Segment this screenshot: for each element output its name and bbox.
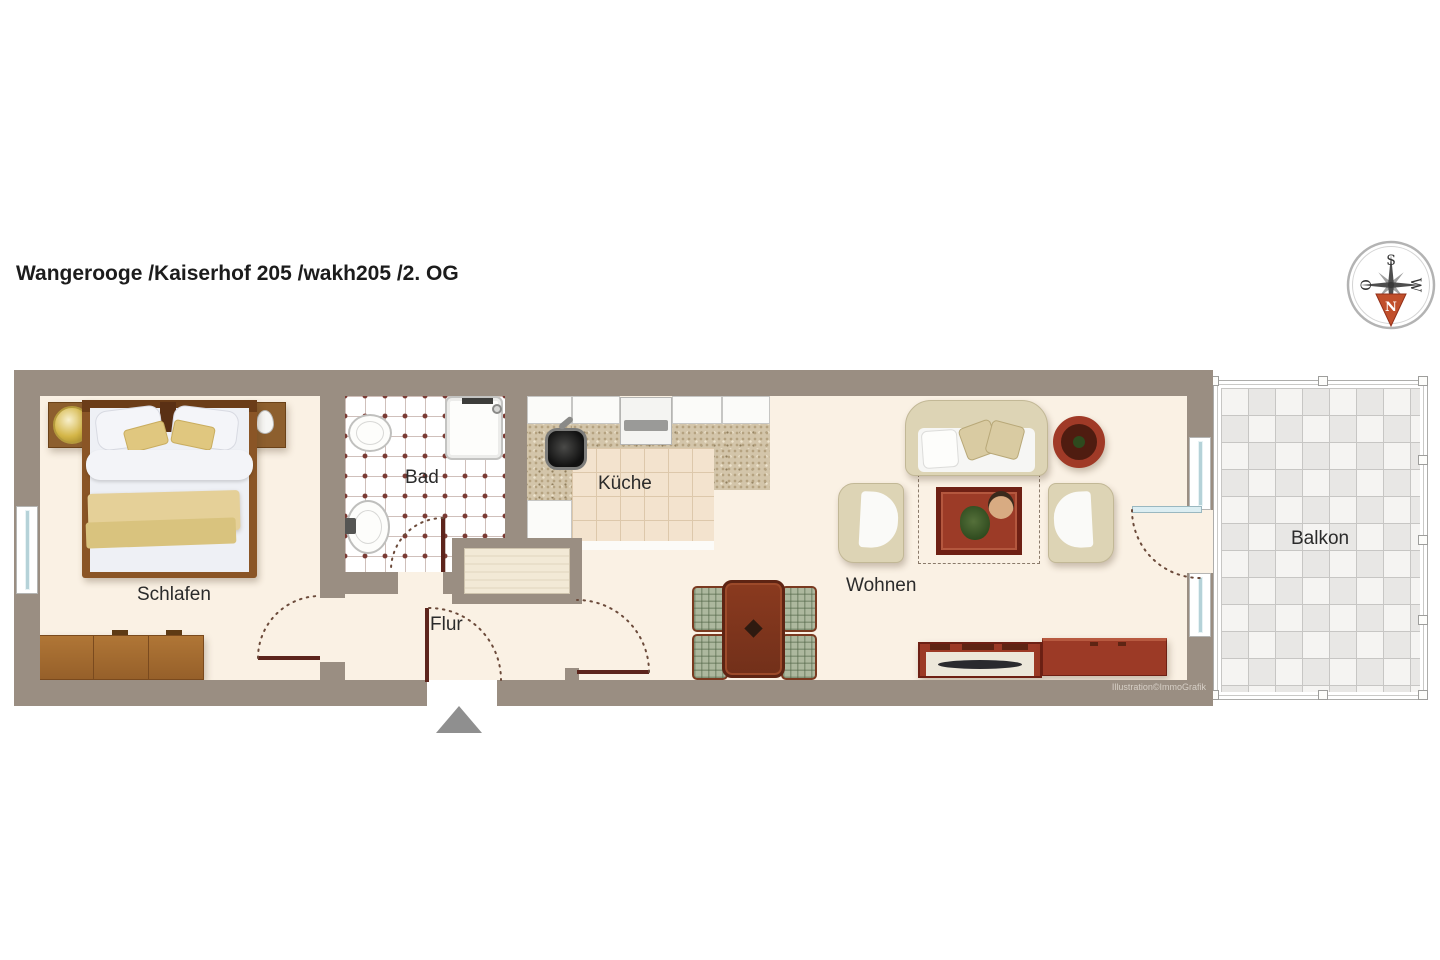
sideboard-knob	[1090, 642, 1098, 646]
balcony-post	[1418, 455, 1428, 465]
room-label-bathroom: Bad	[405, 467, 439, 489]
bedroom-window-glass	[26, 511, 29, 589]
wall-top	[14, 370, 1213, 396]
wall-bottom-left	[14, 680, 427, 706]
dining-chair	[781, 586, 817, 632]
room-label-hallway: Flur	[430, 614, 463, 636]
coffee-table-figure-icon	[988, 491, 1014, 519]
sideboard-knob	[1118, 642, 1126, 646]
kitchen-threshold	[572, 541, 714, 550]
page-title: Wangerooge /Kaiserhof 205 /wakh205 /2. O…	[16, 262, 459, 286]
dresser-divider	[93, 636, 94, 679]
hall-closet-interior	[464, 548, 570, 594]
entrance-door-leaf	[425, 608, 429, 682]
kitchen-counter-return	[714, 448, 770, 490]
balcony-post	[1418, 690, 1428, 700]
kitchen-cabinet	[572, 396, 620, 424]
kitchen-lower-cabinet	[527, 500, 572, 541]
balcony-post	[1418, 615, 1428, 625]
living-window-lower	[1189, 573, 1211, 637]
bathroom-sink-basin	[354, 510, 382, 544]
shower-fixture-bar	[462, 398, 493, 404]
compass-rose: S O W N	[1344, 238, 1438, 332]
wall-bath-kitchen-divider	[505, 396, 527, 538]
entrance-arrow	[436, 706, 482, 733]
shower-head-icon	[492, 404, 502, 414]
bed-duvet-fold	[86, 450, 253, 480]
kitchen-cabinet	[672, 396, 722, 424]
dresser-handle	[166, 630, 182, 635]
balcony-post	[1318, 376, 1328, 386]
balcony-post	[1418, 376, 1428, 386]
balcony-post	[1418, 535, 1428, 545]
dresser-handle	[112, 630, 128, 635]
stove-band	[624, 420, 668, 431]
room-label-kitchen: Küche	[598, 473, 652, 495]
kitchen-cabinet	[722, 396, 770, 424]
compass-center-dot	[1388, 282, 1394, 288]
entrance-opening	[427, 680, 497, 706]
sideboard-knob	[930, 644, 950, 650]
sofa-pillow-white	[921, 429, 960, 469]
dresser-divider	[148, 636, 149, 679]
living-door-leaf	[577, 670, 649, 674]
nightstand-lamp-right-icon	[256, 410, 274, 434]
bedroom-window	[16, 506, 38, 594]
wall-bath-bottom-left	[345, 572, 398, 594]
bedroom-door-leaf	[258, 656, 320, 660]
toilet-bowl-rim	[356, 421, 384, 445]
living-window-upper	[1189, 437, 1211, 510]
dining-chair	[781, 634, 817, 680]
room-label-bedroom: Schlafen	[137, 584, 211, 606]
tv-screen-icon	[938, 660, 1022, 669]
bathroom-door-leaf	[441, 518, 445, 572]
compass-label-east: O	[1359, 279, 1375, 290]
bedroom-dresser	[38, 635, 204, 680]
sideboard-right	[1042, 638, 1167, 676]
sideboard-knob	[962, 644, 994, 650]
balcony-door-leaf	[1132, 506, 1202, 513]
compass-label-south: S	[1386, 253, 1396, 269]
compass-label-north: N	[1385, 300, 1397, 315]
balcony-post	[1318, 690, 1328, 700]
living-window-upper-glass	[1199, 442, 1202, 505]
credit-text: Illustration©ImmoGrafik	[1078, 682, 1206, 692]
bed-blanket-layer2	[86, 517, 237, 548]
room-label-balcony: Balkon	[1291, 528, 1349, 550]
wall-bedroom-divider	[320, 396, 345, 598]
coffee-table-plant-icon	[960, 506, 990, 540]
side-table-plant-icon	[1073, 436, 1085, 448]
sideboard-knob	[1002, 644, 1028, 650]
bathroom-faucet-icon	[344, 518, 356, 534]
living-window-lower-glass	[1199, 578, 1202, 632]
compass-label-west: W	[1407, 278, 1423, 293]
balcony-door-opening	[1187, 510, 1213, 573]
room-label-living: Wohnen	[846, 575, 916, 597]
wall-bedroom-divider-stub	[320, 662, 345, 680]
kitchen-sink	[545, 428, 587, 470]
